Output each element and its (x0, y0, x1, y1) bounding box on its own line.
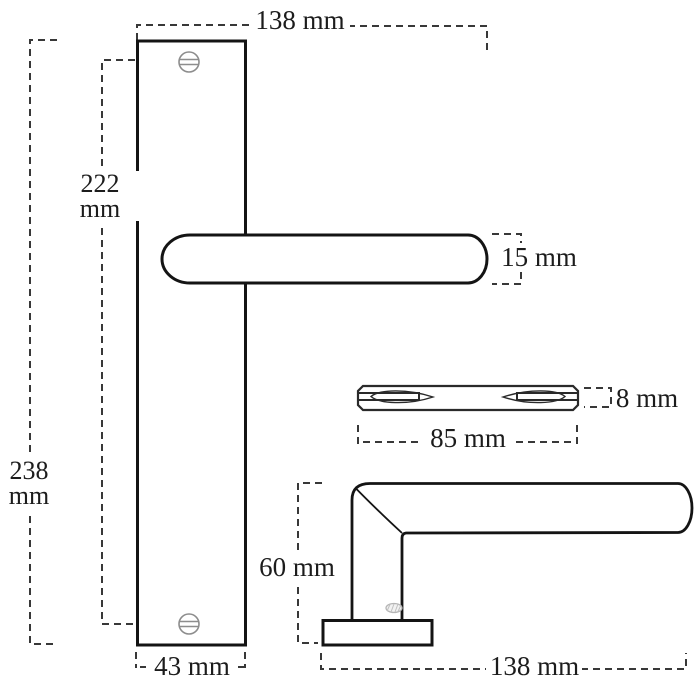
dim-unit: mm (0, 483, 59, 508)
side-lever-outline (352, 484, 692, 622)
dim-label-lever-thickness: 15 mm (494, 243, 584, 271)
dim-label-spindle-length: 85 mm (423, 424, 513, 452)
dim-label-screw-distance: 222 mm (60, 171, 140, 221)
dimension-drawing: 138 mm 222 mm 15 mm 8 mm 85 mm 238 mm 60… (0, 0, 700, 700)
grub-screw-icon (386, 604, 402, 613)
dim-line-spindle-thickness (584, 388, 611, 407)
dim-label-handle-height: 60 mm (252, 553, 342, 581)
dim-value: 222 (60, 171, 140, 196)
dim-line-plate-height (30, 40, 57, 644)
dim-label-plate-width: 43 mm (147, 652, 237, 680)
dim-label-lever-length-top: 138 mm (250, 6, 350, 34)
spindle-view (358, 386, 578, 410)
dim-label-spindle-thickness: 8 mm (614, 384, 680, 412)
dim-value: 238 (0, 458, 59, 483)
backplate-outline (138, 41, 246, 645)
dim-label-handle-length-side: 138 mm (487, 652, 582, 680)
dim-label-plate-height: 238 mm (0, 458, 59, 508)
dim-line-screw-distance (102, 60, 135, 624)
side-view (323, 484, 692, 646)
drawing-canvas (0, 0, 700, 700)
dim-unit: mm (60, 196, 140, 221)
rosette-outline (323, 621, 432, 646)
lever-front-outline (162, 235, 487, 283)
spindle-outline (358, 386, 578, 410)
